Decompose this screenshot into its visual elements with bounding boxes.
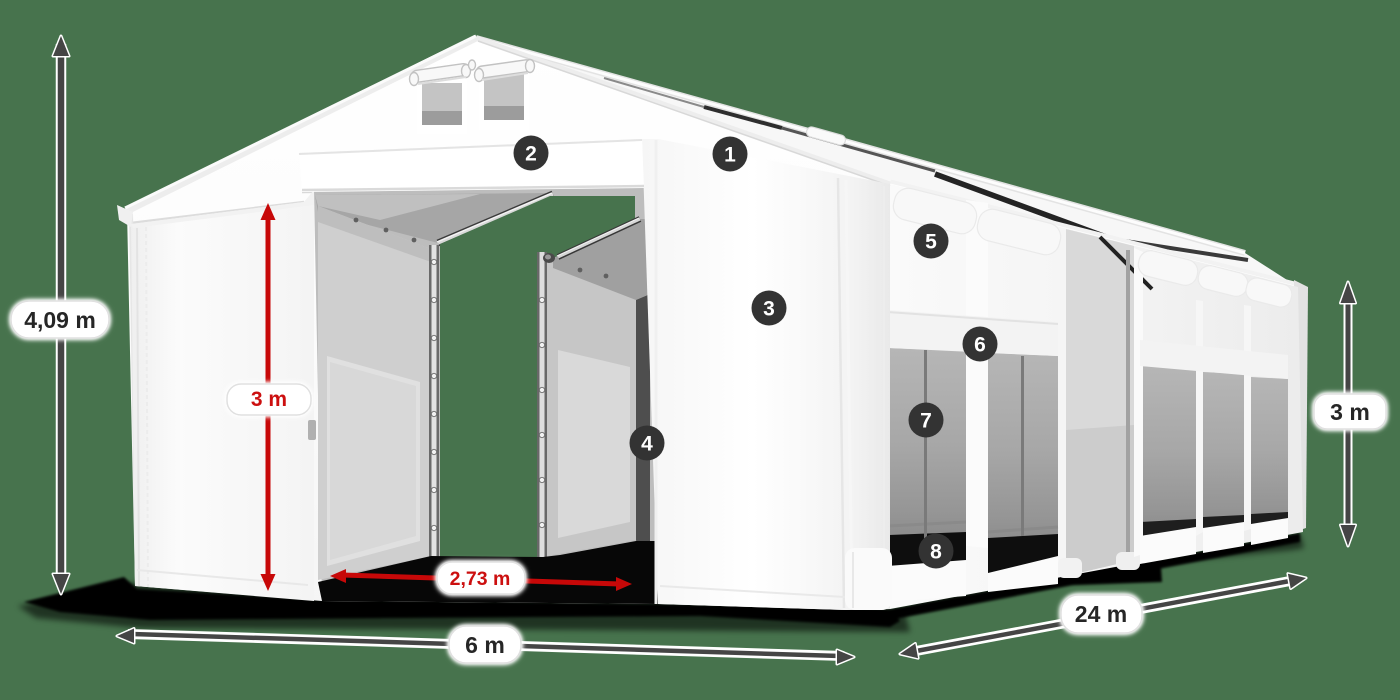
svg-text:3: 3 [763, 298, 775, 321]
svg-text:1: 1 [724, 144, 736, 167]
svg-text:4,09 m: 4,09 m [24, 307, 96, 333]
svg-text:3 m: 3 m [251, 388, 287, 411]
svg-text:4: 4 [641, 433, 653, 456]
svg-text:7: 7 [920, 410, 932, 433]
svg-text:5: 5 [925, 231, 937, 254]
svg-text:6: 6 [974, 334, 986, 357]
svg-text:3 m: 3 m [1330, 399, 1370, 425]
svg-text:6 m: 6 m [465, 632, 505, 658]
svg-text:8: 8 [930, 541, 942, 564]
svg-text:2,73 m: 2,73 m [450, 568, 511, 590]
svg-text:2: 2 [525, 143, 537, 166]
svg-text:24 m: 24 m [1075, 601, 1127, 627]
